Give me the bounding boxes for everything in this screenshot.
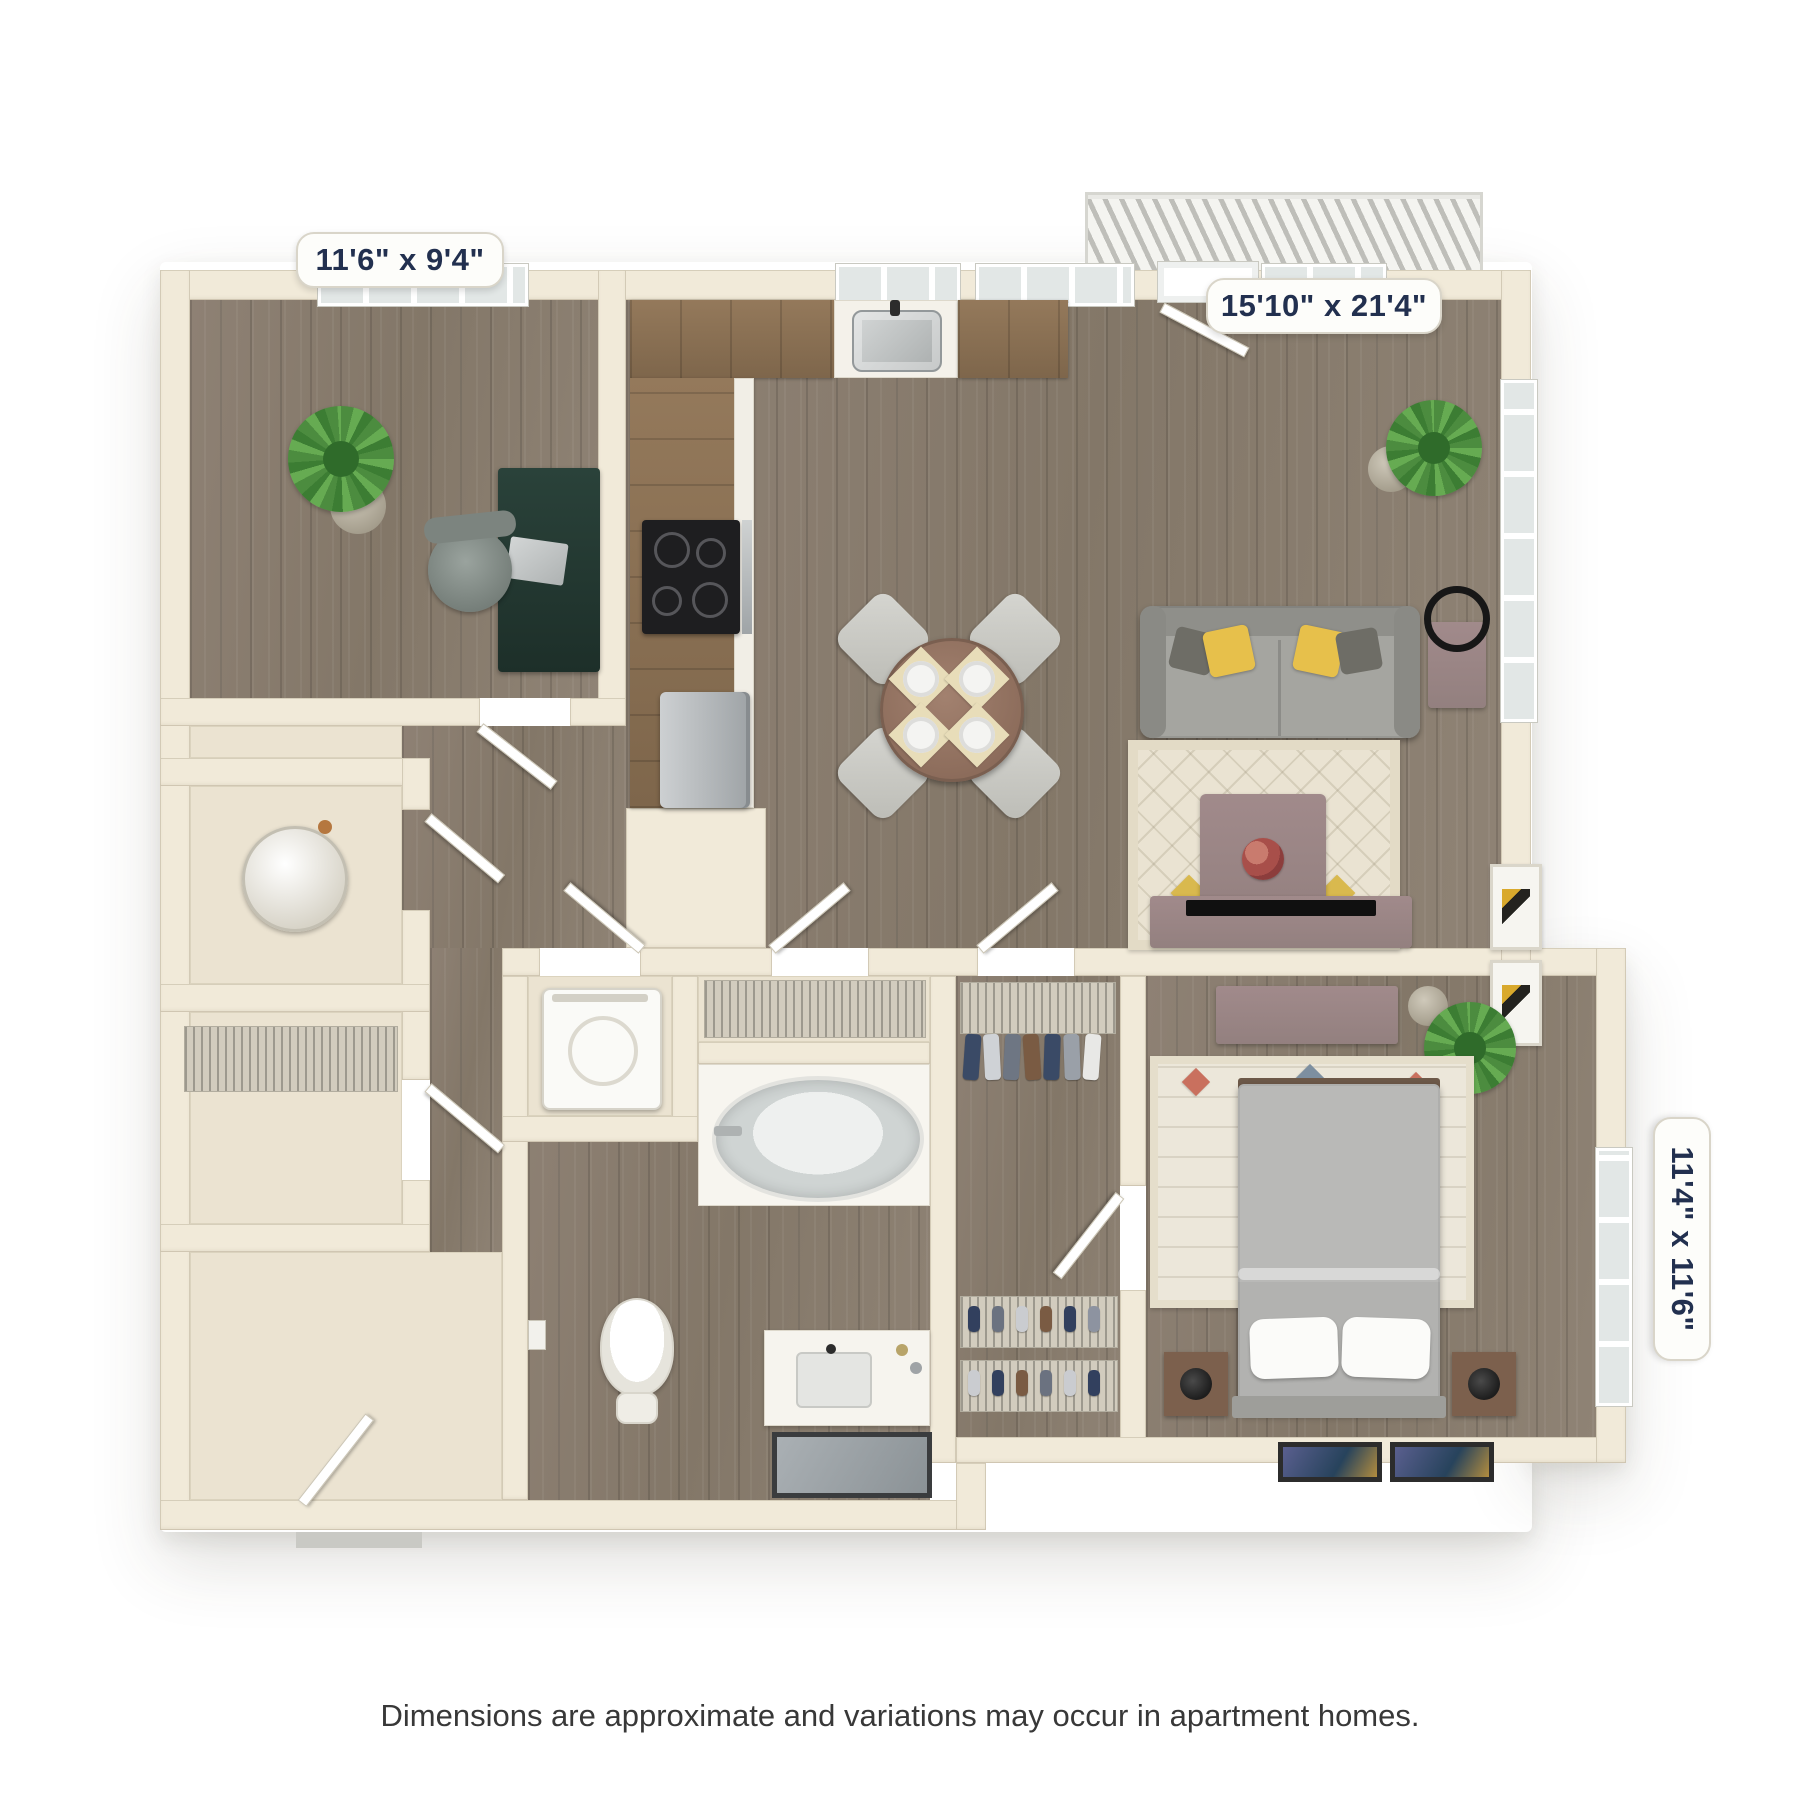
living-plant-core	[1418, 432, 1451, 465]
closet-clothes-3	[1003, 1034, 1021, 1081]
dimension-label-top-left-room: 11'6" x 9'4"	[296, 232, 504, 288]
toilet-bowl	[600, 1298, 674, 1396]
plate-nw	[903, 661, 939, 697]
kitchen-upper-cabinets-left	[630, 300, 834, 378]
dining-table	[880, 638, 1024, 782]
tub-faucet	[714, 1126, 742, 1136]
sofa-pillow-yellow-left	[1202, 624, 1257, 679]
office-plant-core	[323, 441, 359, 477]
kitchen-fridge	[660, 692, 750, 808]
shoe-1	[968, 1306, 980, 1332]
bedroom-picture-left	[1278, 1442, 1382, 1482]
closet-clothes-5	[1043, 1034, 1061, 1081]
decor-ring	[1424, 586, 1490, 652]
wall-laundry-bottom	[502, 1116, 698, 1142]
vanity-sink	[796, 1352, 872, 1408]
plate-se	[959, 717, 995, 753]
shoe-10	[1040, 1370, 1052, 1396]
wall-divider-b	[640, 948, 772, 976]
wall-art-top-graphic	[1502, 889, 1530, 924]
entry-threshold	[296, 1532, 422, 1548]
vanity-faucet	[826, 1344, 836, 1354]
entry-floor	[190, 1252, 502, 1500]
closet-clothes-6	[1063, 1034, 1081, 1081]
plate-sw	[903, 717, 939, 753]
closet-clothes-7	[1082, 1033, 1101, 1080]
wall-bath-left	[502, 976, 528, 1500]
washer-controls	[552, 994, 648, 1002]
stove-handle	[742, 520, 752, 634]
wall-divider-c	[868, 948, 978, 976]
stove-burner-4	[692, 582, 728, 618]
kitchen-upper-cabinets-right	[958, 300, 1068, 378]
toilet-base	[616, 1392, 658, 1424]
plate-ne	[959, 661, 995, 697]
disclaimer-text: Dimensions are approximate and variation…	[0, 1698, 1800, 1734]
living-plant-icon	[1386, 400, 1482, 496]
bedroom-picture-right	[1390, 1442, 1494, 1482]
bathtub	[712, 1076, 924, 1202]
bed-pillow-right	[1341, 1316, 1431, 1379]
vanity-mirror	[772, 1432, 932, 1498]
bed-blanket-fold	[1238, 1268, 1440, 1280]
coffee-table-flowers	[1242, 838, 1284, 880]
wall-divider-d	[1074, 948, 1626, 976]
closet-clothes-1	[962, 1033, 981, 1080]
shoe-5	[1064, 1306, 1076, 1332]
dimension-label-top-right-room: 15'10" x 21'4"	[1206, 278, 1442, 334]
stove-burner-2	[696, 538, 726, 568]
wall-bottom-left	[160, 1500, 986, 1530]
wall-divider-a	[502, 948, 540, 976]
kitchen-stove	[642, 520, 740, 634]
shoe-2	[992, 1306, 1004, 1332]
shoe-4	[1040, 1306, 1052, 1332]
washer-door	[568, 1016, 638, 1086]
shoe-11	[1064, 1370, 1076, 1396]
wall-closet-left	[930, 976, 956, 1463]
wall-step	[956, 1463, 986, 1530]
wall-left	[160, 270, 190, 1530]
shoe-9	[1016, 1370, 1028, 1396]
living-window	[1501, 380, 1537, 722]
bath-linen-shelf	[704, 980, 926, 1038]
office-plant-icon	[288, 406, 394, 512]
lamp-right	[1468, 1368, 1500, 1400]
kitchen-sink	[852, 310, 942, 372]
wall-kitchen-peninsula-cap	[626, 808, 766, 948]
sofa-armrest-right	[1394, 606, 1420, 738]
floor-plan: 11'6" x 9'4" 15'10" x 21'4" 11'4" x 11'6…	[0, 0, 1800, 1800]
wall-closet-right-a	[1120, 976, 1146, 1186]
shoe-3	[1016, 1306, 1028, 1332]
shoe-12	[1088, 1370, 1100, 1396]
wall-closet-h3	[160, 1224, 430, 1252]
closet-clothes-4	[1022, 1033, 1041, 1080]
wall-closet-h1	[160, 758, 430, 786]
bed-pillow-left	[1249, 1316, 1339, 1379]
stove-burner-3	[652, 586, 682, 616]
wall-closet-h2	[160, 984, 430, 1012]
kitchen-faucet	[890, 300, 900, 316]
office-laptop	[505, 536, 568, 586]
vanity-accessory-2	[910, 1362, 922, 1374]
bedroom-window	[1596, 1148, 1632, 1406]
sofa-seat-split	[1278, 640, 1281, 736]
bed-headboard	[1232, 1396, 1446, 1418]
sofa-pillow-dark-right	[1335, 627, 1384, 676]
upper-nook-floor	[190, 726, 402, 758]
wall-art-top	[1490, 864, 1542, 950]
wall-office-bottom-a	[160, 698, 480, 726]
water-heater-pipe	[318, 820, 332, 834]
shoe-7	[968, 1370, 980, 1396]
water-heater	[242, 826, 348, 932]
linen-closet-shelf	[184, 1026, 398, 1092]
toilet-paper-holder	[528, 1320, 546, 1350]
wall-closet-v-a	[402, 758, 430, 810]
wall-office-right	[598, 270, 626, 726]
tv	[1186, 900, 1376, 916]
shoe-6	[1088, 1306, 1100, 1332]
dimension-label-bedroom: 11'4" x 11'6"	[1653, 1117, 1711, 1361]
wall-office-bottom-b	[570, 698, 626, 726]
stove-burner-1	[654, 532, 690, 568]
wall-linen-nook-bottom	[698, 1042, 930, 1064]
closet-top-shelf	[960, 982, 1116, 1034]
wall-art-bottom-graphic	[1502, 985, 1530, 1020]
sofa-armrest-left	[1140, 606, 1166, 738]
dresser	[1216, 986, 1398, 1044]
lamp-left	[1180, 1368, 1212, 1400]
closet-clothes-2	[983, 1034, 1001, 1081]
shoe-8	[992, 1370, 1004, 1396]
vanity-accessory-1	[896, 1344, 908, 1356]
